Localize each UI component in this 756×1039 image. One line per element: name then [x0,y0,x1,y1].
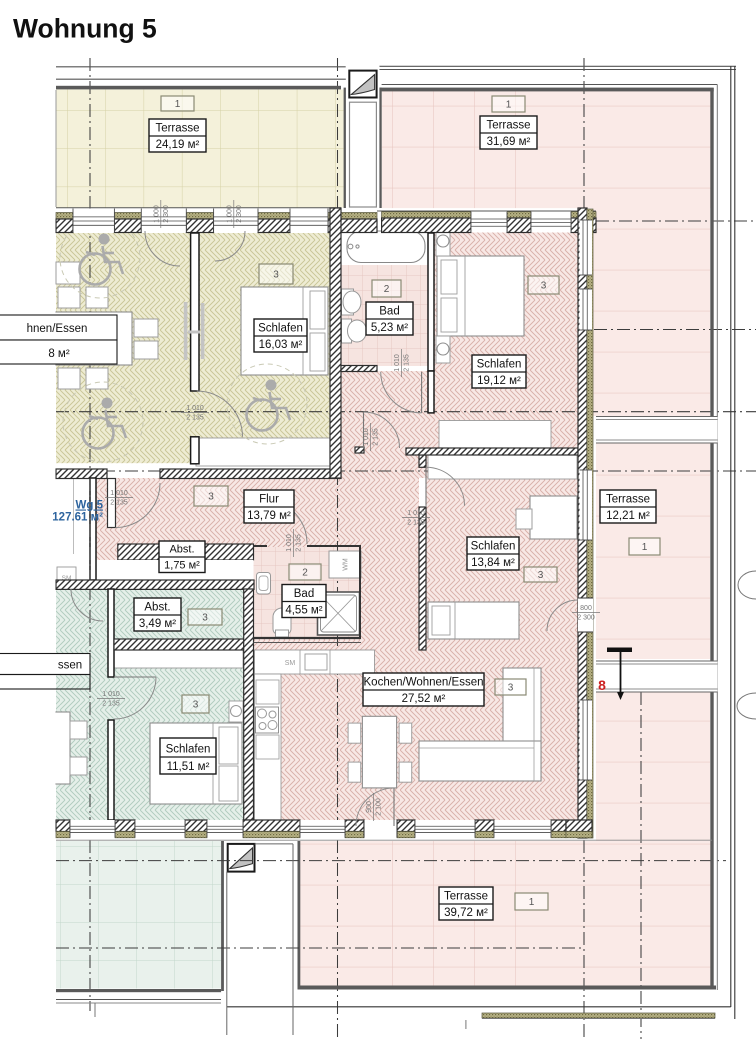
svg-text:3: 3 [273,270,279,281]
svg-text:Wg 5: Wg 5 [76,500,104,512]
svg-text:2 135: 2 135 [296,534,303,552]
svg-text:2 100: 2 100 [376,798,383,816]
svg-text:1 010: 1 010 [102,691,120,698]
svg-text:24,19 м²: 24,19 м² [156,139,200,151]
svg-text:900: 900 [366,801,373,813]
svg-text:2: 2 [384,284,390,295]
svg-text:Abst.: Abst. [144,602,170,614]
svg-text:ssen: ssen [58,660,82,672]
svg-text:Abst.: Abst. [169,544,194,556]
svg-text:3: 3 [208,492,214,503]
svg-text:1 010: 1 010 [407,510,425,517]
svg-text:WM: WM [343,558,350,571]
svg-text:1: 1 [529,897,535,908]
svg-text:1: 1 [642,542,648,553]
svg-text:3: 3 [541,281,547,292]
svg-text:2 135: 2 135 [186,415,204,422]
svg-text:1 000: 1 000 [226,205,233,223]
svg-text:3,49 м²: 3,49 м² [139,618,176,630]
svg-text:1 010: 1 010 [363,428,370,446]
svg-text:2 135: 2 135 [373,428,380,446]
svg-text:31,69 м²: 31,69 м² [487,136,531,148]
svg-text:3: 3 [538,570,544,581]
svg-text:Schlafen: Schlafen [471,541,516,553]
svg-text:2: 2 [302,568,308,579]
svg-text:3: 3 [202,613,208,624]
svg-text:2 135: 2 135 [102,701,120,708]
svg-text:2 300: 2 300 [577,615,595,622]
svg-text:Kochen/Wohnen/Essen: Kochen/Wohnen/Essen [364,677,484,689]
svg-text:8 м²: 8 м² [48,348,69,360]
svg-text:Flur: Flur [259,494,279,506]
svg-text:Terrasse: Terrasse [486,120,530,132]
svg-text:39,72 м²: 39,72 м² [444,907,488,919]
svg-text:Wohnung 5: Wohnung 5 [13,14,157,44]
svg-text:Schlafen: Schlafen [166,744,211,756]
svg-text:3: 3 [508,683,514,694]
svg-text:1,75 м²: 1,75 м² [164,560,200,572]
svg-text:1 010: 1 010 [110,490,128,497]
svg-text:11,51 м²: 11,51 м² [167,761,210,773]
svg-text:Schlafen: Schlafen [477,359,522,371]
svg-text:1 000: 1 000 [153,205,160,223]
svg-text:1 010: 1 010 [394,354,401,372]
svg-text:Terrasse: Terrasse [444,891,488,903]
svg-text:Bad: Bad [379,306,399,318]
svg-text:3: 3 [193,700,199,711]
svg-text:127.61 м²: 127.61 м² [52,512,103,524]
svg-text:hnen/Essen: hnen/Essen [27,323,88,335]
svg-text:19,12 м²: 19,12 м² [477,375,521,387]
svg-text:2 135: 2 135 [404,354,411,372]
svg-text:Terrasse: Terrasse [155,123,199,135]
svg-text:5,23 м²: 5,23 м² [371,322,408,334]
svg-text:13,84 м²: 13,84 м² [471,557,515,569]
svg-text:Schlafen: Schlafen [258,323,303,335]
svg-text:1 010: 1 010 [186,405,204,412]
svg-text:1 010: 1 010 [286,534,293,552]
svg-text:4,55 м²: 4,55 м² [285,605,322,617]
svg-text:SM: SM [285,660,296,667]
svg-text:2 135: 2 135 [110,500,128,507]
svg-text:Terrasse: Terrasse [606,494,650,506]
svg-text:2 135: 2 135 [407,520,425,527]
svg-text:27,52 м²: 27,52 м² [402,693,446,705]
svg-text:800: 800 [580,605,592,612]
svg-text:Bad: Bad [294,588,314,600]
svg-text:16,03 м²: 16,03 м² [259,339,303,351]
svg-text:12,21 м²: 12,21 м² [606,510,650,522]
svg-text:2 300: 2 300 [163,205,170,223]
svg-text:13,79 м²: 13,79 м² [247,510,291,522]
svg-text:2 300: 2 300 [236,205,243,223]
svg-text:1: 1 [506,100,512,111]
svg-text:8: 8 [598,677,606,693]
svg-text:1: 1 [175,99,181,110]
